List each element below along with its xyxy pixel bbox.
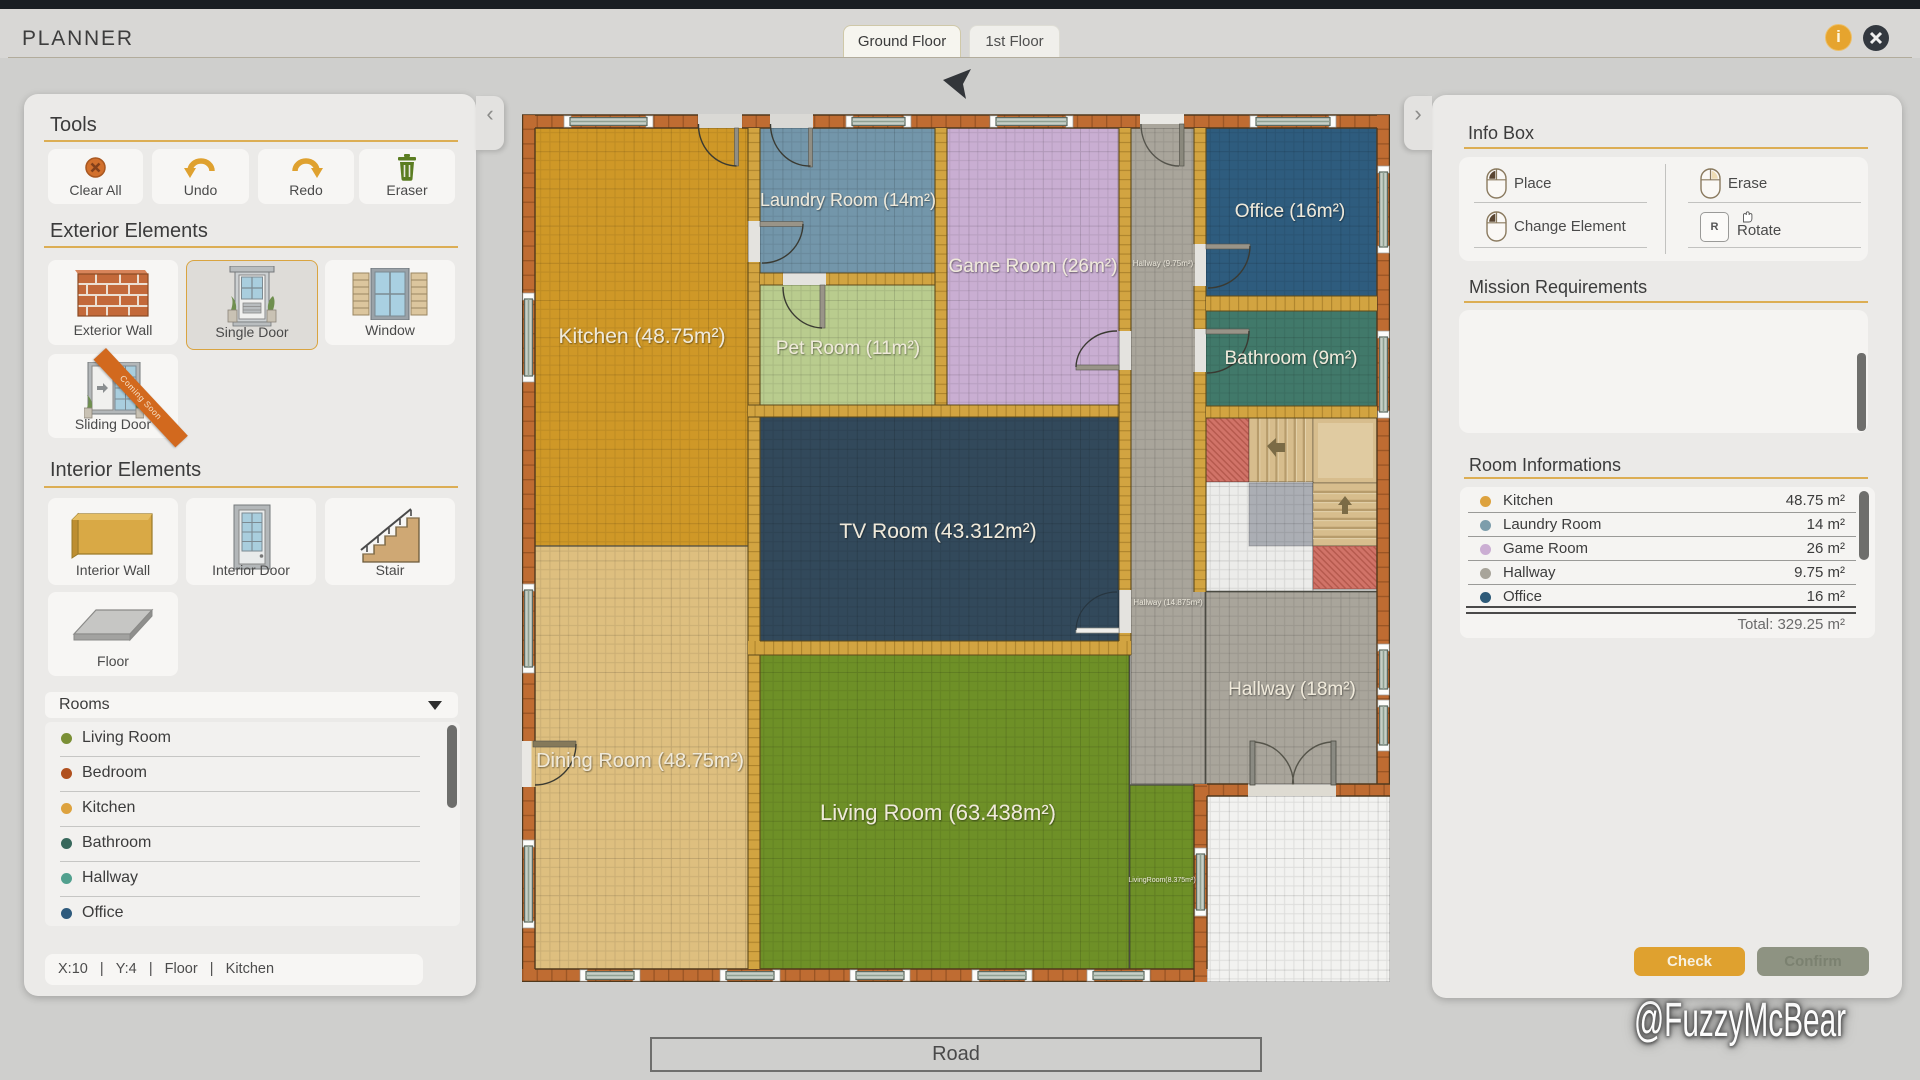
svg-text:Hallway (9.75m²): Hallway (9.75m²)	[1133, 259, 1194, 268]
svg-text:Living Room (63.438m²): Living Room (63.438m²)	[820, 800, 1056, 825]
svg-text:Hallway (14.875m²): Hallway (14.875m²)	[1133, 598, 1203, 607]
svg-text:Game Room (26m²): Game Room (26m²)	[949, 256, 1118, 277]
svg-text:Bathroom (9m²): Bathroom (9m²)	[1224, 348, 1357, 369]
svg-text:Kitchen (48.75m²): Kitchen (48.75m²)	[559, 325, 726, 348]
svg-text:Office (16m²): Office (16m²)	[1235, 201, 1346, 222]
svg-text:Pet Room (11m²): Pet Room (11m²)	[776, 338, 920, 359]
svg-text:TV Room (43.312m²): TV Room (43.312m²)	[839, 520, 1036, 543]
svg-text:Hallway (18m²): Hallway (18m²)	[1228, 679, 1356, 700]
svg-text:Dining Room (48.75m²): Dining Room (48.75m²)	[536, 750, 744, 772]
svg-text:LivingRoom(8.375m²): LivingRoom(8.375m²)	[1128, 877, 1195, 884]
svg-text:Laundry Room (14m²): Laundry Room (14m²)	[760, 190, 936, 210]
